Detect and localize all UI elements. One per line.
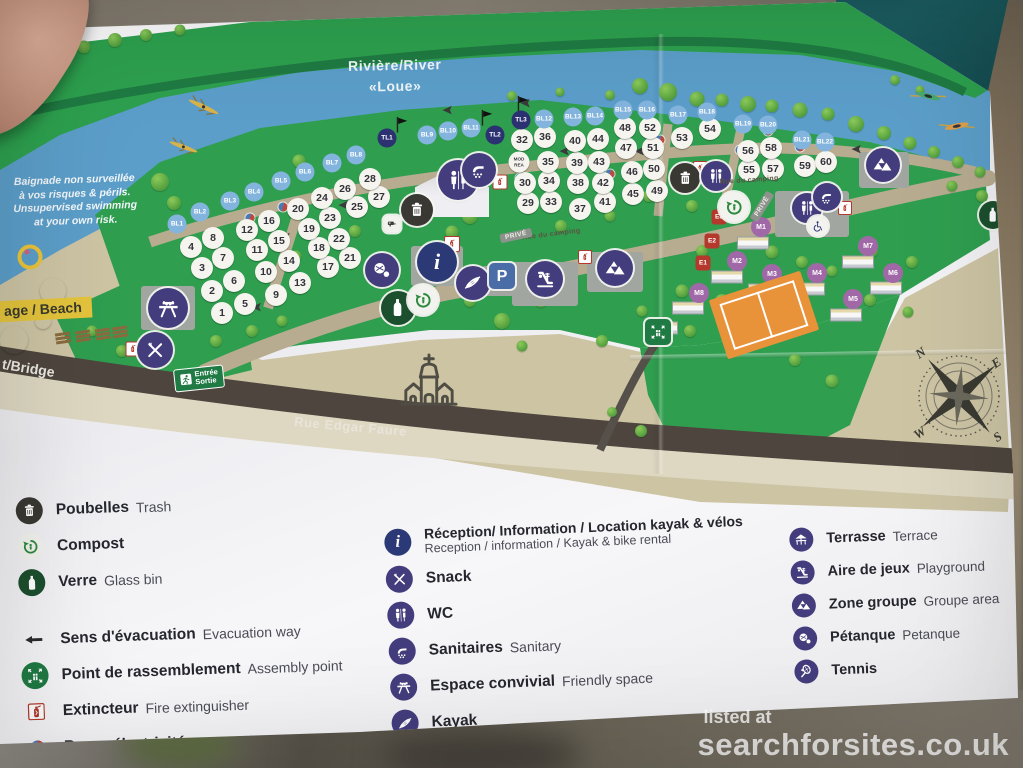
watermark: listed at searchforsites.co.uk (697, 707, 1009, 763)
legend-item-snack: Snack (385, 552, 745, 593)
group-zone-icon (791, 593, 816, 618)
legend-item-assembly: Point de rassemblement Assembly point (21, 651, 343, 689)
legend-label-fr: Verre (58, 571, 97, 590)
legend-label-fr: Aire de jeux (827, 560, 910, 579)
legend-label-en: Sanitary (509, 637, 561, 655)
legend-label-en: Petanque (902, 625, 960, 642)
exit-label: Sortie (195, 376, 219, 387)
legend-label-fr: Zone groupe (829, 593, 917, 612)
swim-warning-note: Baignade non surveillée à vos risques & … (4, 172, 146, 231)
legend-column-middle: i Réception/ Information / Location kaya… (384, 513, 751, 746)
tennis-racket-icon (794, 659, 819, 684)
legend-item-tennis: Tennis (794, 652, 1002, 684)
beach-label: age / Beach (0, 296, 92, 322)
legend-label-en: Assembly point (247, 657, 342, 676)
legend-item-friendly-space: Espace convivial Friendly space (390, 660, 750, 701)
river-label-line2: «Loue» (325, 75, 465, 98)
legend-label-en: Friendly space (562, 669, 654, 689)
legend-item-evacuation: Sens d'évacuation Evacuation way (20, 615, 342, 653)
legend-label-fr: WC (427, 604, 454, 623)
legend-item-wc: WC (387, 588, 747, 629)
legend-label-en: Terrace (892, 527, 938, 544)
assembly-point-icon (21, 662, 49, 690)
terrace-icon (789, 527, 814, 552)
church-icon (398, 352, 460, 408)
bridge-label: t/Bridge (1, 356, 56, 380)
legend-label-fr: Tennis (831, 661, 877, 679)
legend-label-fr: Pétanque (830, 627, 896, 645)
legend-item-playground: Aire de jeux Playground (790, 553, 998, 585)
legend-label-fr: Snack (425, 567, 471, 587)
prive-sign: PRIVÉ (750, 191, 775, 223)
glass-bin-icon (18, 569, 46, 597)
special-pitch-line2: REA (514, 162, 524, 167)
legend-label-en: Glass bin (104, 570, 163, 588)
legend-label-en: Fire extinguisher (145, 696, 249, 716)
snack-icon (385, 565, 413, 593)
legend-column-left: Poubelles Trash Compost Verre Glass bin … (15, 486, 345, 768)
legend-column-right: Terrasse Terrace Aire de jeux Playground… (789, 520, 1003, 693)
wc-icon (387, 601, 415, 629)
trash-icon (15, 497, 43, 525)
legend-label-fr: Extincteur (62, 699, 138, 720)
playground-icon (790, 560, 815, 585)
legend-item-petanque: Pétanque Petanque (793, 619, 1001, 651)
legend-label-en: Playground (916, 558, 985, 576)
legend-label-fr: Sens d'évacuation (60, 625, 196, 648)
river-label: Rivière/River «Loue» (325, 54, 466, 98)
legend-label-fr: Compost (57, 534, 125, 554)
legend-label-en: Trash (136, 498, 172, 515)
legend-label-fr: Sanitaires (428, 638, 503, 659)
legend-label-fr: Espace convivial (430, 672, 556, 695)
special-pitch-marker: MOD REA (509, 152, 530, 173)
map-paper: 1234567891011121314151617181920212223242… (0, 0, 1023, 768)
legend-label-fr: Poubelles (55, 498, 129, 519)
compass-rose: N E S W (908, 343, 1010, 447)
info-icon: i (384, 528, 412, 556)
river-label-line1: Rivière/River (325, 54, 465, 77)
legend-item-group-zone: Zone groupe Groupe area (791, 586, 999, 618)
entrance-exit-sign: Entrée Sortie (173, 364, 225, 392)
evacuation-arrow-icon (20, 626, 48, 654)
legend-label-en: Evacuation way (202, 622, 301, 641)
road-label-rue-du-camping: Rue du camping (720, 175, 779, 186)
watermark-line1: listed at (703, 707, 1009, 728)
petanque-icon (793, 626, 818, 651)
legend-label-fr: Terrasse (826, 528, 886, 546)
legend-item-compost: Compost (17, 522, 339, 560)
watermark-line2: searchforsites.co.uk (697, 727, 1009, 763)
legend-label-fr: Point de rassemblement (61, 659, 241, 683)
exit-runner-icon (179, 373, 192, 386)
compost-icon (17, 533, 45, 561)
sanitary-shower-icon (388, 637, 416, 665)
picnic-table-icon (390, 673, 418, 701)
legend-label-en: Groupe area (923, 591, 999, 609)
fire-extinguisher-icon (22, 698, 50, 726)
photo-of-campsite-map: 1234567891011121314151617181920212223242… (0, 0, 1023, 768)
legend-item-glass: Verre Glass bin (18, 558, 340, 596)
tennis-court (709, 271, 819, 360)
legend-item-sanitary: Sanitaires Sanitary (388, 624, 748, 665)
legend-item-extinguisher: Extincteur Fire extinguisher (22, 687, 344, 725)
road-label-rue-edgar-faure: Rue Edgar Faure (294, 414, 408, 439)
